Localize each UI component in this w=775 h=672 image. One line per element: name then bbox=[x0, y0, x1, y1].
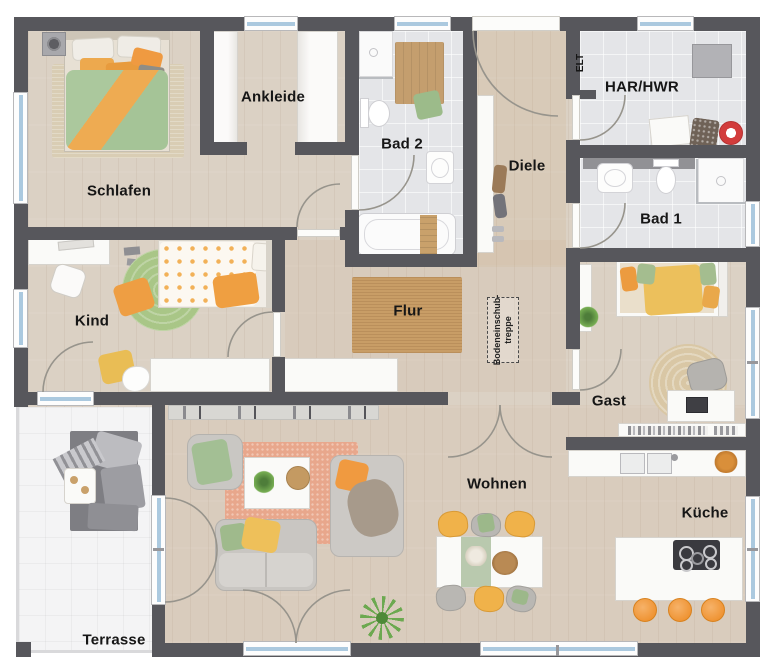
burner bbox=[705, 558, 717, 570]
window bbox=[745, 201, 760, 247]
orange-blanket bbox=[212, 271, 260, 309]
room-label-kueche: Küche bbox=[682, 506, 729, 521]
floor-plan: Schlafen Ankleide Bad 2 Diele HAR/HWR Ba… bbox=[0, 0, 775, 672]
wall-unit bbox=[42, 32, 66, 56]
window-glass bbox=[640, 22, 691, 26]
window-divider bbox=[747, 361, 758, 364]
window-divider bbox=[556, 645, 559, 656]
window-divider bbox=[153, 548, 164, 551]
window bbox=[394, 16, 451, 31]
wall-interior bbox=[566, 437, 760, 450]
sideboard bbox=[280, 358, 398, 392]
wall-interior bbox=[295, 142, 345, 155]
laptop bbox=[686, 397, 708, 413]
sideboard bbox=[150, 358, 270, 392]
room-label-kind: Kind bbox=[75, 314, 109, 329]
plant bbox=[254, 468, 274, 496]
window-glass bbox=[397, 22, 448, 26]
window-glass bbox=[751, 204, 755, 244]
room-label-bad2: Bad 2 bbox=[381, 137, 423, 152]
bed-duvet bbox=[66, 70, 168, 150]
wall-interior bbox=[566, 248, 760, 262]
yellow-blanket bbox=[240, 516, 281, 554]
plant bbox=[577, 305, 599, 329]
wall-interior bbox=[463, 31, 477, 267]
glass bbox=[70, 476, 78, 484]
room-label-schlafen: Schlafen bbox=[87, 184, 151, 199]
outdoor-table bbox=[64, 468, 96, 504]
door-leaf bbox=[351, 155, 359, 210]
wall-interior bbox=[14, 227, 297, 240]
wall-interior bbox=[200, 31, 214, 142]
green-pillow bbox=[699, 262, 717, 285]
toilet-bowl bbox=[656, 166, 676, 194]
wall-interior bbox=[345, 254, 477, 267]
appliance bbox=[692, 44, 732, 78]
room-label-terrasse: Terrasse bbox=[82, 633, 145, 648]
wall-interior bbox=[566, 145, 760, 158]
wall-interior bbox=[340, 227, 345, 240]
bathtub-caddy bbox=[420, 215, 437, 254]
room-label-har-hwr: HAR/HWR bbox=[605, 80, 679, 95]
window-divider bbox=[747, 548, 758, 551]
bucket bbox=[719, 121, 743, 145]
window bbox=[244, 16, 298, 31]
door-leaf bbox=[572, 349, 580, 390]
room-label-elt: ELT bbox=[576, 54, 586, 72]
room-label-wohnen: Wohnen bbox=[467, 477, 527, 492]
shoes bbox=[492, 236, 504, 242]
bar-stool bbox=[633, 598, 657, 622]
room-label-ankleide: Ankleide bbox=[241, 90, 305, 105]
window-glass bbox=[247, 22, 295, 26]
door-leaf bbox=[273, 312, 281, 357]
sink-basin bbox=[604, 169, 626, 187]
plant-center bbox=[376, 612, 388, 624]
bar-stool bbox=[668, 598, 692, 622]
toilet-bowl bbox=[368, 100, 390, 127]
green-pillow bbox=[636, 263, 656, 285]
terrace-post bbox=[16, 642, 31, 657]
wall-interior bbox=[566, 257, 580, 349]
wall-interior bbox=[200, 142, 247, 155]
window bbox=[13, 92, 28, 204]
wall-interior bbox=[552, 392, 580, 405]
wall-exterior-left bbox=[14, 17, 28, 407]
burner bbox=[703, 545, 717, 559]
window bbox=[637, 16, 694, 31]
washing-machine bbox=[649, 115, 692, 148]
green-blanket bbox=[191, 438, 234, 486]
bar-stool bbox=[701, 598, 725, 622]
door-leaf bbox=[572, 95, 580, 140]
fruit-bowl bbox=[712, 451, 740, 473]
window-glass bbox=[19, 95, 23, 201]
french-door bbox=[243, 641, 351, 656]
window-glass bbox=[40, 397, 91, 401]
shower-drain bbox=[716, 176, 726, 186]
window bbox=[13, 289, 28, 348]
green-towel bbox=[413, 90, 444, 121]
flowers bbox=[465, 546, 487, 566]
books bbox=[628, 426, 708, 435]
room-label-flur: Flur bbox=[393, 304, 422, 319]
seat-cushions bbox=[219, 553, 313, 587]
entrance-door bbox=[472, 16, 560, 31]
room-label-diele: Diele bbox=[509, 159, 546, 174]
room-label-gast: Gast bbox=[592, 394, 626, 409]
terrace-door bbox=[37, 391, 94, 406]
door-leaf bbox=[572, 203, 580, 248]
towel-on-chair bbox=[477, 513, 496, 534]
wardrobe bbox=[297, 31, 338, 143]
wall-shelf bbox=[168, 405, 379, 420]
sink-basin bbox=[620, 453, 645, 474]
bowl bbox=[492, 551, 518, 575]
books bbox=[714, 426, 738, 435]
orange-pillow bbox=[702, 285, 721, 309]
window bbox=[480, 641, 638, 656]
window-glass bbox=[246, 647, 348, 651]
label-bodeneinschubtreppe: Bodeneinschub- treppe bbox=[492, 295, 515, 366]
wall-shelf bbox=[124, 246, 141, 255]
label-bodeneinschubtreppe-line1: Bodeneinschub- bbox=[492, 295, 503, 366]
sink-basin bbox=[647, 453, 672, 474]
sink-basin bbox=[431, 158, 449, 178]
shower-drain bbox=[369, 48, 378, 57]
label-bodeneinschubtreppe-line2: treppe bbox=[503, 295, 514, 366]
glass bbox=[81, 486, 89, 494]
window-glass bbox=[483, 647, 635, 651]
wall-interior bbox=[566, 90, 596, 99]
wall-interior bbox=[345, 31, 359, 155]
door-leaf bbox=[297, 229, 340, 237]
wall-interior bbox=[272, 227, 285, 312]
faucet bbox=[671, 454, 678, 461]
window-glass bbox=[19, 292, 23, 345]
shoes bbox=[492, 226, 504, 232]
tray bbox=[286, 466, 310, 490]
outdoor-bench bbox=[87, 503, 138, 532]
room-label-bad1: Bad 1 bbox=[640, 212, 682, 227]
burner bbox=[691, 552, 704, 565]
